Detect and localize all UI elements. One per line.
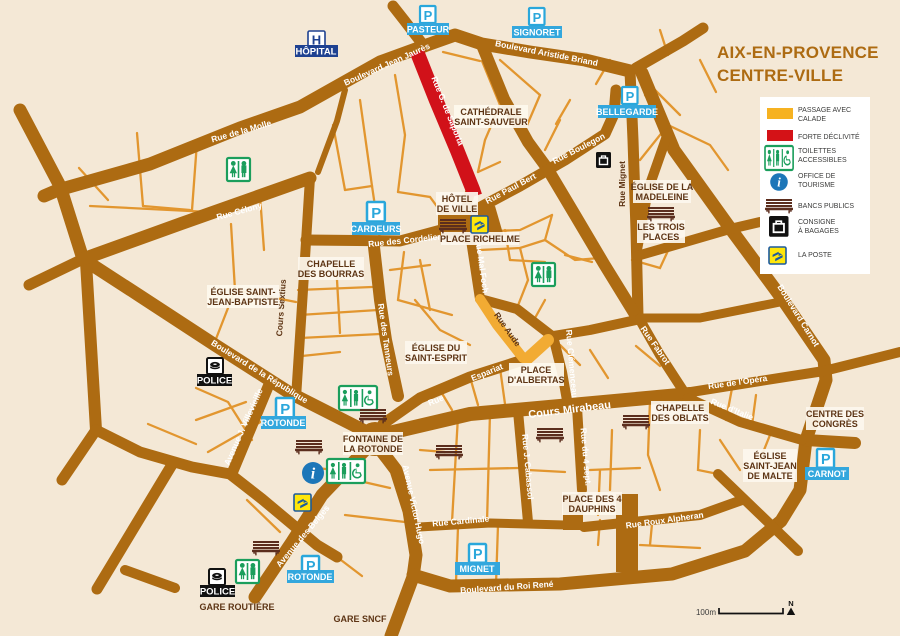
svg-text:D'ALBERTAS: D'ALBERTAS xyxy=(508,375,565,385)
svg-text:AIX-EN-PROVENCE: AIX-EN-PROVENCE xyxy=(717,43,879,62)
svg-text:PLACES: PLACES xyxy=(643,232,680,242)
svg-text:DAUPHINS: DAUPHINS xyxy=(568,504,615,514)
svg-text:SAINT-ESPRIT: SAINT-ESPRIT xyxy=(405,353,468,363)
svg-text:PASSAGE AVEC: PASSAGE AVEC xyxy=(798,107,851,114)
svg-text:ÉGLISE: ÉGLISE xyxy=(753,451,786,461)
svg-text:GARE SNCF: GARE SNCF xyxy=(333,614,387,624)
svg-text:CALADE: CALADE xyxy=(798,116,826,123)
svg-text:ÉGLISE SAINT-: ÉGLISE SAINT- xyxy=(210,287,275,297)
svg-text:SAINT-SAUVEUR: SAINT-SAUVEUR xyxy=(454,117,528,127)
svg-text:CONSIGNE: CONSIGNE xyxy=(798,219,836,226)
svg-text:DES BOURRAS: DES BOURRAS xyxy=(298,269,365,279)
svg-text:PASTEUR: PASTEUR xyxy=(407,25,450,35)
svg-text:BELLEGARDE: BELLEGARDE xyxy=(596,107,658,117)
svg-text:OFFICE DE: OFFICE DE xyxy=(798,173,836,180)
svg-text:CARDEURS: CARDEURS xyxy=(350,224,401,234)
svg-text:MADELEINE: MADELEINE xyxy=(635,192,688,202)
svg-text:LA POSTE: LA POSTE xyxy=(798,252,832,259)
svg-text:ÉGLISE DE LA: ÉGLISE DE LA xyxy=(631,182,694,192)
svg-text:FORTE DÉCLIVITÉ: FORTE DÉCLIVITÉ xyxy=(798,132,860,141)
svg-text:CONGRÈS: CONGRÈS xyxy=(812,419,858,429)
svg-text:POLICE: POLICE xyxy=(200,587,235,598)
svg-text:ROTONDE: ROTONDE xyxy=(261,418,306,428)
svg-text:POLICE: POLICE xyxy=(197,376,232,387)
svg-text:LA ROTONDE: LA ROTONDE xyxy=(343,444,402,454)
svg-text:ROTONDE: ROTONDE xyxy=(288,572,333,582)
svg-text:DE MALTE: DE MALTE xyxy=(747,471,792,481)
svg-text:100m: 100m xyxy=(696,608,716,617)
svg-text:BANCS PUBLICS: BANCS PUBLICS xyxy=(798,203,854,210)
svg-text:MIGNET: MIGNET xyxy=(460,564,496,574)
svg-text:LES TROIS: LES TROIS xyxy=(637,222,685,232)
svg-text:GARE ROUTIÈRE: GARE ROUTIÈRE xyxy=(199,602,274,612)
svg-text:FONTAINE DE: FONTAINE DE xyxy=(343,434,403,444)
svg-text:CENTRE-VILLE: CENTRE-VILLE xyxy=(717,66,843,85)
svg-text:CHAPELLE: CHAPELLE xyxy=(656,403,705,413)
svg-text:HÔTEL: HÔTEL xyxy=(442,193,473,204)
svg-text:ÉGLISE DU: ÉGLISE DU xyxy=(412,343,461,353)
svg-text:SAINT-JEAN: SAINT-JEAN xyxy=(743,461,797,471)
svg-text:HÔPITAL: HÔPITAL xyxy=(296,46,337,58)
svg-text:DE VILLE: DE VILLE xyxy=(437,204,478,214)
svg-text:PLACE RICHELME: PLACE RICHELME xyxy=(440,234,520,244)
svg-text:PLACE: PLACE xyxy=(521,365,552,375)
svg-text:CHAPELLE: CHAPELLE xyxy=(307,259,356,269)
svg-text:CENTRE DES: CENTRE DES xyxy=(806,409,864,419)
svg-text:DES OBLATS: DES OBLATS xyxy=(651,413,708,423)
svg-text:TOILETTES: TOILETTES xyxy=(798,148,836,155)
svg-text:TOURISME: TOURISME xyxy=(798,182,835,189)
svg-text:SIGNORET: SIGNORET xyxy=(513,28,561,38)
svg-text:PLACE DES 4: PLACE DES 4 xyxy=(562,494,621,504)
svg-text:ACCESSIBLES: ACCESSIBLES xyxy=(798,157,847,164)
svg-text:N: N xyxy=(788,599,793,608)
svg-text:CATHÉDRALE: CATHÉDRALE xyxy=(460,107,521,117)
svg-text:JEAN-BAPTISTE: JEAN-BAPTISTE xyxy=(207,297,279,307)
svg-text:CARNOT: CARNOT xyxy=(808,469,847,479)
svg-text:Rue Mignet: Rue Mignet xyxy=(617,161,627,207)
svg-text:À BAGAGES: À BAGAGES xyxy=(798,226,839,235)
